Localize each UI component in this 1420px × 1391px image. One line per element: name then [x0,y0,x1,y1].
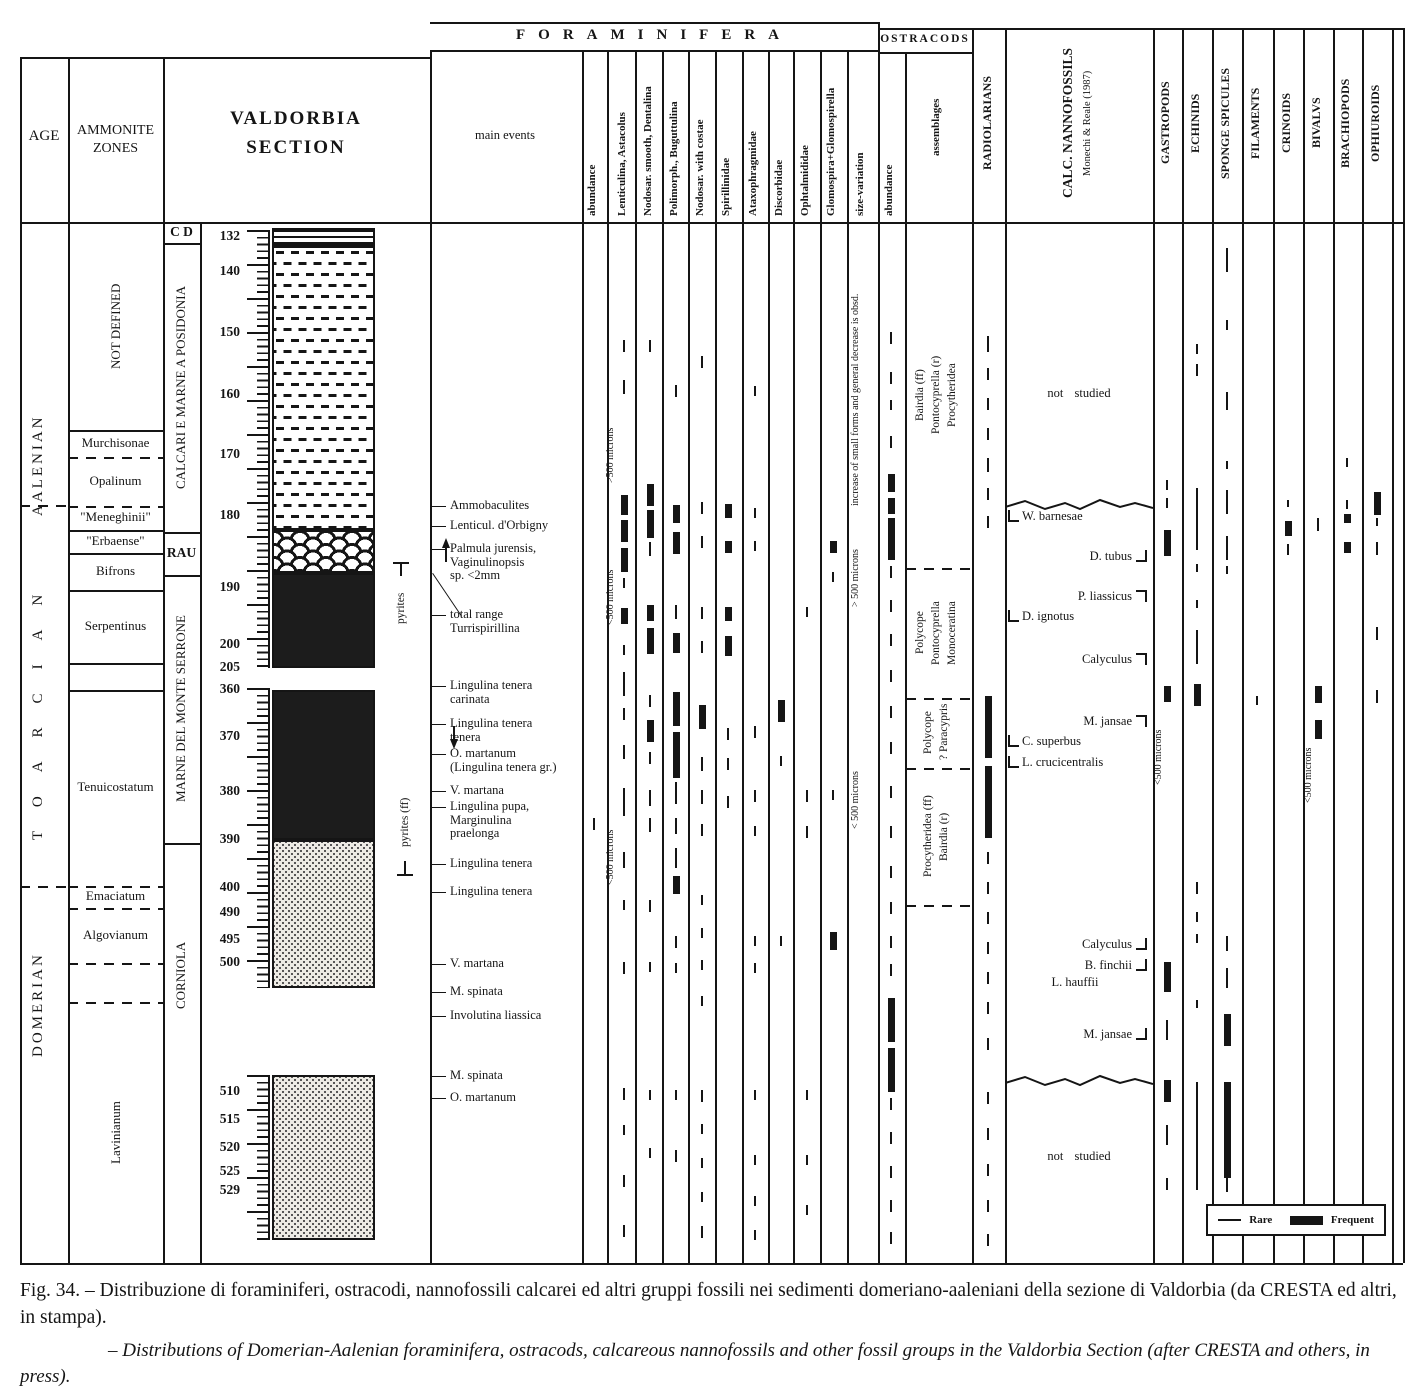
event-leader-line [431,992,446,993]
zone-boundary [68,690,163,692]
grid-line-vertical [1273,28,1275,1263]
grid-line-vertical [1182,28,1184,1263]
fossil-group-header: BRACHIOPODS [1338,28,1353,218]
grid-line-vertical [820,50,822,1263]
foram-range-mark [701,1090,704,1102]
depth-ruler [246,688,270,988]
zone-label: Algovianum [68,927,163,943]
foram-range-mark [649,542,652,556]
frequent-bar-sample [1290,1216,1323,1225]
litho-unit-scales [272,530,375,573]
fossil-group-range-mark [1196,1082,1199,1190]
foram-range-mark [675,963,678,973]
fossil-group-range-mark [1374,492,1381,515]
foram-range-mark [701,824,704,836]
zone-boundary [68,590,163,592]
foram-range-mark [623,1088,626,1100]
foram-range-mark [701,1158,704,1168]
foram-range-mark [806,826,809,838]
foram-range-mark [675,818,678,834]
event-label: Involutina liassica [450,1008,541,1023]
foram-range-mark [623,788,626,816]
foram-range-mark [673,532,680,554]
foram-column-header: Nodosar. with costae [694,52,706,216]
litho-unit-black [272,690,375,840]
foram-range-mark [806,790,809,802]
depth-ruler [246,230,270,668]
grid-line-vertical [1392,28,1394,1263]
foram-range-mark [725,541,732,553]
grid-line-horizontal [20,57,430,59]
event-label: Lenticul. d'Orbigny [450,518,548,533]
foram-range-mark [623,672,626,696]
fossil-group-range-mark [1164,1080,1171,1102]
event-leader-line [431,892,446,893]
assemblage-divider [906,698,972,700]
fossil-group-range-mark [1346,500,1349,509]
ostracod-assemblage-label: Pontocyprella (r) [930,230,942,560]
formation-label: CORNIOLA [173,815,189,1135]
ostracod-range-mark [890,634,893,646]
grid-line-vertical [582,50,584,1263]
zone-boundary [68,457,163,459]
zone-label: Murchisonae [68,435,163,451]
event-leader-line [431,964,446,965]
ostracod-range-mark [890,332,893,344]
stratigraphic-distribution-figure: AGE AMMONITE ZONES VALDORBIA SECTION mai… [0,0,1420,1391]
foram-column-header: Nodosar. smooth, Dentalina [642,52,654,216]
fossil-group-range-mark [1166,480,1169,490]
fossil-group-range-mark [1196,564,1199,572]
fossil-group-range-mark [1317,518,1320,531]
nanno-species-label: L. hauffii [1005,975,1145,990]
fossil-group-range-mark [1164,530,1171,556]
event-label: Ammobaculites [450,498,529,513]
valdorbia-section-title: VALDORBIA SECTION [216,105,376,162]
event-label: Lingulina tenera [450,884,532,899]
depth-label: 500 [198,954,240,970]
foram-range-mark [673,732,680,778]
nanno-not-studied: not studied [1005,386,1153,401]
event-leader-line [431,1098,446,1099]
foram-range-mark [675,385,678,397]
foram-range-mark [623,578,626,588]
size-annotation: increase of small forms and general decr… [850,250,861,550]
fossil-group-header: GASTROPODS [1158,28,1173,218]
foram-range-mark [675,782,678,804]
foraminifera-group-title: FORAMINIFERA [430,27,878,44]
nannofossils-reference: Monechi & Reale (1987) [1082,28,1093,218]
foram-range-mark [699,705,706,729]
foram-range-mark [673,692,680,726]
depth-label: 380 [198,783,240,799]
grid-line-vertical [715,50,717,1263]
grid-line-vertical [1303,28,1305,1263]
event-arrow-stem [453,726,455,740]
size-annotation: <500 microns [1303,733,1314,817]
zone-boundary [68,1002,163,1004]
fossil-group-range-mark [1196,934,1199,943]
foram-range-mark [701,757,704,771]
event-label: M. spinata [450,984,503,999]
foram-range-mark [621,548,628,572]
radiolarian-range-mark [987,912,990,924]
radiolarian-range-mark [987,1002,990,1014]
fossil-group-range-mark [1226,490,1229,514]
ostracod-assemblages-header: assemblages [930,52,942,202]
foram-range-mark [623,708,626,720]
foram-range-mark [701,1226,704,1238]
ostracod-range-mark [888,498,895,514]
event-leader-line [431,549,446,550]
depth-label: 205 [198,659,240,675]
foram-range-mark [701,1124,704,1134]
depth-label: 170 [198,446,240,462]
depth-label: 360 [198,681,240,697]
foram-range-mark [754,1155,757,1165]
fossil-group-range-mark [1315,720,1322,739]
ammonite-zones-header: AMMONITE ZONES [70,122,161,158]
depth-label: 400 [198,879,240,895]
foram-range-mark [754,541,757,551]
ostracod-range-mark [890,866,893,878]
foram-range-mark [806,1155,809,1165]
fossil-group-range-mark [1376,690,1379,703]
ostracod-range-mark [890,566,893,578]
age-boundary [20,886,68,888]
grid-line-vertical [905,52,907,1263]
grid-line-vertical [20,57,22,1263]
event-leader-line [431,724,446,725]
grid-line-vertical [742,50,744,1263]
depth-label: 520 [198,1139,240,1155]
zone-label: "Erbaense" [68,533,163,549]
fossil-group-range-mark [1226,968,1229,988]
event-label: carinata [450,692,490,707]
radiolarian-range-mark [987,488,990,500]
fossil-group-range-mark [1196,912,1199,922]
foram-range-mark [649,1148,652,1158]
radiolarian-range-mark [987,516,990,528]
fossil-group-range-mark [1196,600,1199,608]
radiolarian-range-mark [987,368,990,380]
foram-range-mark [754,936,757,946]
event-leader-line [431,807,446,808]
litho-unit-stipple [272,1075,375,1240]
fossil-group-range-mark [1344,514,1351,523]
grid-line-vertical [635,50,637,1263]
fossil-group-range-mark [1376,627,1379,640]
depth-label: 200 [198,636,240,652]
pyrite-symbol [400,562,402,576]
grid-line-horizontal [430,22,878,24]
radiolarian-range-mark [985,696,992,758]
nanno-species-label: B. finchii [1008,958,1132,973]
ostracod-range-mark [890,1098,893,1110]
radiolarian-range-mark [987,1092,990,1104]
foram-range-mark [806,1205,809,1215]
grid-line-vertical [688,50,690,1263]
foram-range-mark [647,510,654,538]
ostracod-assemblage-label: Polycope [914,576,926,690]
assemblage-divider [906,768,972,770]
foram-range-mark [701,928,704,938]
depth-label: 510 [198,1083,240,1099]
ostracod-range-mark [890,436,893,448]
size-annotation: <500 microns [605,815,616,899]
litho-unit-stipple [272,840,375,988]
ostracod-range-mark [890,742,893,754]
fossil-group-range-mark [1166,1020,1169,1040]
fossil-group-range-mark [1196,1000,1199,1008]
ostracod-range-mark [890,826,893,838]
size-annotation: > 500 microns [850,531,861,625]
foram-range-mark [621,520,628,542]
foram-range-mark [623,1125,626,1135]
foram-range-mark [727,728,730,740]
nanno-species-label: Calyculus [1008,937,1132,952]
ostracod-assemblage-label: ? Paracypris [938,706,950,760]
event-label: V. martana [450,783,504,798]
foram-column-header: abundance [586,52,598,216]
foram-range-mark [593,818,596,830]
zone-label: Lavinianum [108,1033,124,1233]
radiolarian-range-mark [987,458,990,472]
event-label: sp. <2mm [450,568,500,583]
grid-line-horizontal [20,222,1403,224]
ostracod-assemblage-label: Polycope [922,706,934,760]
fossil-group-range-mark [1224,1014,1231,1046]
nanno-range-bracket [1136,1028,1147,1040]
foram-range-mark [830,541,837,553]
foram-range-mark [673,633,680,653]
zone-label: Opalinum [68,473,163,489]
ostracod-range-mark [890,670,893,682]
foram-range-mark [647,628,654,654]
ostracod-abundance-header: abundance [883,52,895,216]
fossil-group-range-mark [1287,500,1290,507]
size-annotation: >500 microns [605,413,616,497]
nanno-range-bracket [1136,715,1147,727]
foram-range-mark [701,895,704,905]
pyrite-symbol [397,874,413,876]
fossil-group-range-mark [1226,461,1229,469]
radiolarian-range-mark [987,428,990,440]
grid-line-vertical [793,50,795,1263]
depth-label: 132 [198,228,240,244]
fossil-group-range-mark [1196,364,1199,376]
event-label: praelonga [450,826,499,841]
grid-line-vertical [1242,28,1244,1263]
nanno-range-bracket [1008,735,1019,747]
ostracod-range-mark [890,964,893,976]
foram-range-mark [727,758,730,770]
fossil-group-range-mark [1376,542,1379,555]
fossil-group-range-mark [1224,1082,1231,1178]
fossil-group-range-mark [1226,536,1229,560]
foram-column-header: size-variation [854,52,866,216]
event-label: O. martanum [450,1090,516,1105]
fossil-group-range-mark [1166,1178,1169,1190]
foram-column-header: Discorbidae [773,52,785,216]
foram-range-mark [675,848,678,868]
fossil-group-range-mark [1285,521,1292,536]
foram-range-mark [701,641,704,653]
grid-line-vertical [768,50,770,1263]
nanno-range-bracket [1136,653,1147,665]
ostracod-assemblage-label: Pontocyprella [930,576,942,690]
ostracod-range-mark [890,706,893,718]
foram-range-mark [649,752,652,764]
nannofossils-header: CALC. NANNOFOSSILS [1060,28,1076,218]
event-leader-line [431,615,446,616]
foram-range-mark [754,1090,757,1100]
foram-range-mark [621,495,628,515]
legend: Rare Frequent [1206,1204,1386,1236]
main-events-header: main events [430,128,580,143]
foram-column-header: Spirillinidae [720,52,732,216]
event-label: (Lingulina tenera gr.) [450,760,557,775]
foram-range-mark [778,700,785,722]
zone-boundary [68,506,163,508]
fossil-group-header: ECHINIDS [1188,28,1203,218]
fossil-group-range-mark [1196,488,1199,550]
foram-range-mark [649,340,652,352]
foram-column-header: Ophtalmididae [799,52,811,216]
radiolarian-range-mark [985,766,992,838]
event-leader-line [431,754,446,755]
size-annotation: < 500 microns [850,753,861,847]
foram-range-mark [649,1090,652,1100]
grid-line-horizontal [20,1263,1403,1265]
foram-range-mark [701,356,704,368]
foram-range-mark [623,900,626,910]
formation-label: CALCARI E MARNE A POSIDONIA [173,228,189,548]
foram-range-mark [647,605,654,621]
foram-range-mark [727,796,730,808]
zone-label: "Meneghinii" [68,509,163,525]
foram-range-mark [649,695,652,707]
foram-range-mark [623,745,626,759]
foram-range-mark [754,963,757,973]
foram-range-mark [754,508,757,518]
fossil-group-range-mark [1226,248,1229,272]
foram-range-mark [673,876,680,894]
foram-range-mark [623,1225,626,1237]
rare-line-sample [1218,1219,1241,1222]
nanno-range-bracket [1136,550,1147,562]
foram-range-mark [701,502,704,514]
foram-column-header: Glomospira+Glomospirella [825,52,837,216]
nanno-species-label: M. jansae [1008,714,1132,729]
foram-range-mark [725,504,732,518]
foram-range-mark [623,1175,626,1187]
foram-range-mark [832,572,835,582]
grid-line-vertical [1212,28,1214,1263]
foram-range-mark [754,726,757,738]
radiolarian-range-mark [987,1164,990,1176]
fossil-group-range-mark [1256,696,1259,705]
ostracod-range-mark [890,400,893,410]
fossil-group-range-mark [1164,962,1171,992]
event-leader-line [431,1016,446,1017]
radiolarian-range-mark [987,972,990,984]
nanno-species-label: D. ignotus [1022,609,1146,624]
assemblage-divider [906,568,972,570]
foram-range-mark [754,386,757,396]
foram-range-mark [675,1090,678,1100]
depth-label: 490 [198,904,240,920]
ostracod-assemblage-label: Bairdia (r) [938,776,950,897]
nanno-not-studied: not studied [1005,1149,1153,1164]
foram-range-mark [675,936,678,948]
nanno-range-bracket [1136,959,1147,971]
event-leader-line [431,791,446,792]
foram-range-mark [701,996,704,1006]
foram-range-mark [675,605,678,619]
foram-range-mark [725,636,732,656]
event-leader-line [431,864,446,865]
zone-label: Tenuicostatum [68,779,163,795]
radiolarian-range-mark [987,1038,990,1050]
grid-line-vertical [878,22,880,1263]
fossil-group-range-mark [1196,630,1199,664]
depth-label: 370 [198,728,240,744]
litho-unit-marl [272,246,375,530]
ostracod-assemblage-label: Monoceratina [946,576,958,690]
grid-line-vertical [430,50,432,1263]
fossil-group-range-mark [1166,1125,1169,1145]
event-label: M. spinata [450,1068,503,1083]
zone-boundary [68,430,163,432]
radiolarian-range-mark [987,336,990,352]
depth-label: 160 [198,386,240,402]
foram-column-header: Lenticulina, Astacolus [616,52,628,216]
nanno-species-label: Calyculus [1008,652,1132,667]
nanno-species-label: D. tubus [1008,549,1132,564]
foram-range-mark [649,900,652,912]
foram-range-mark [673,505,680,523]
grid-line-vertical [662,50,664,1263]
fossil-group-range-mark [1196,344,1199,354]
ostracod-assemblage-label: Procytheridea [946,230,958,560]
legend-rare-label: Rare [1249,1214,1272,1226]
foram-range-mark [623,962,626,974]
event-leader-line [431,506,446,507]
fossil-group-header: FILAMENTS [1248,28,1263,218]
foram-range-mark [754,790,757,802]
event-leader-line [431,686,446,687]
ostracod-range-mark [890,786,893,798]
radiolarian-range-mark [987,1128,990,1140]
ostracod-range-mark [888,1048,895,1092]
foram-range-mark [621,608,628,624]
foram-range-mark [830,932,837,950]
ostracod-range-mark [890,936,893,948]
ostracod-range-mark [888,474,895,492]
ostracod-range-mark [888,518,895,560]
nanno-range-bracket [1136,590,1147,602]
radiolarians-header: RADIOLARIANS [980,28,995,218]
age-column-header: AGE [20,128,68,145]
grid-line-vertical [1153,28,1155,1263]
fossil-group-range-mark [1166,498,1169,508]
nanno-range-bracket [1136,938,1147,950]
nanno-species-label: M. jansae [1008,1027,1132,1042]
fossil-group-range-mark [1344,542,1351,553]
size-annotation: <500 microns [605,555,616,639]
ostracod-assemblage-label: Bairdia (ff) [914,230,926,560]
